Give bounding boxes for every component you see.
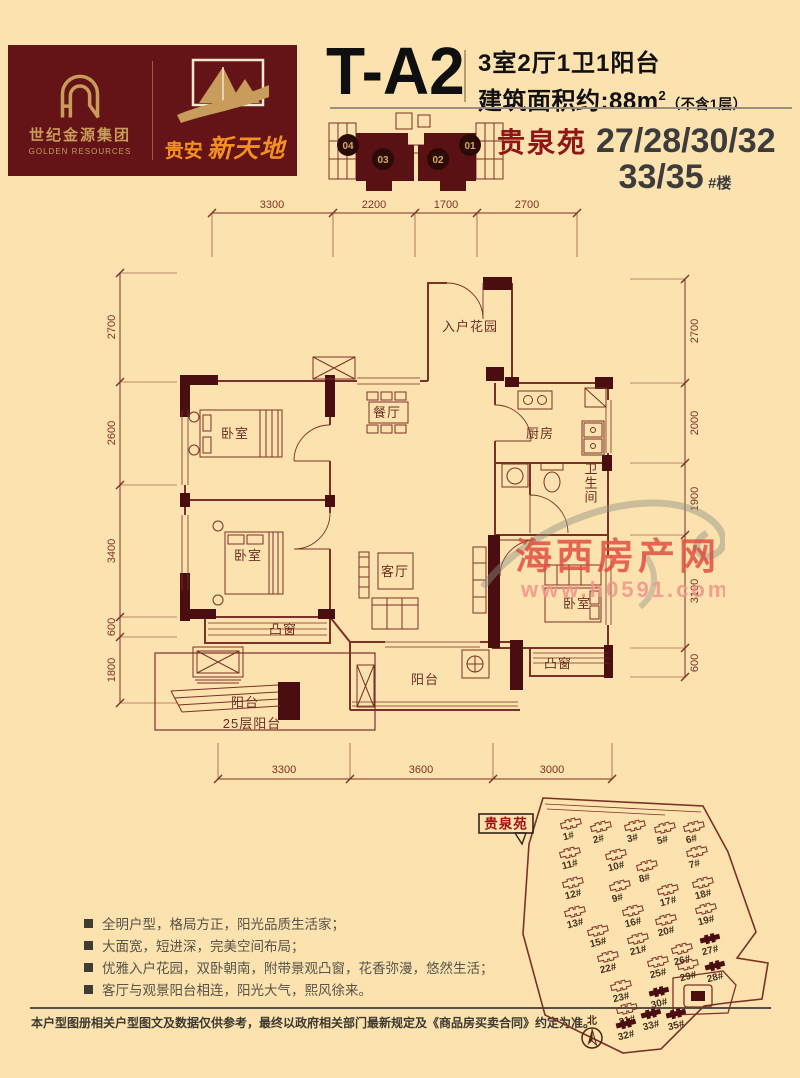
golden-resources-logo: 世纪金源集团 GOLDEN RESOURCES xyxy=(8,45,152,176)
siteplan-building-label: 35# xyxy=(667,1018,686,1033)
siteplan-building-label: 32# xyxy=(617,1028,636,1043)
gr-monogram-icon xyxy=(48,65,112,121)
room-label-balcony: 阳台 xyxy=(411,672,439,687)
site-plan: 1#2#3#5#6#7#8#10#11#12#9#17#18#13#16#19#… xyxy=(465,782,795,1074)
dim-label: 3600 xyxy=(409,764,433,776)
feature-item: 全明户型，格局方正，阳光品质生活家； xyxy=(84,916,524,933)
siteplan-building-label: 16# xyxy=(624,915,643,930)
feature-text: 客厅与观景阳台相连，阳光大气，熙风徐来。 xyxy=(102,982,372,999)
area-line: 建筑面积约:88m2（不含1层） xyxy=(478,81,747,116)
dim-label: 600 xyxy=(689,654,701,672)
brand-logo: 贵安 新天地 xyxy=(153,45,297,176)
key-plan: 04 03 02 01 xyxy=(326,111,506,195)
siteplan-building: 16# xyxy=(621,904,647,930)
unit-badge: 04 xyxy=(342,141,354,152)
room-label-balcony-25f: 阳台 xyxy=(231,695,259,710)
building-suffix: #楼 xyxy=(708,175,731,192)
compass-label: 北 xyxy=(587,1014,597,1027)
siteplan-building-label: 22# xyxy=(599,961,618,976)
brand-name: 贵安 新天地 xyxy=(165,129,285,165)
siteplan-building-label: 7# xyxy=(688,858,702,871)
siteplan-building: 9# xyxy=(608,879,634,905)
court-line-2: 33/35 #楼 xyxy=(560,158,790,197)
area-value: 88 xyxy=(609,88,637,115)
siteplan-building: 19# xyxy=(694,902,720,928)
siteplan-building-label: 8# xyxy=(638,872,652,885)
room-label-living: 客厅 xyxy=(381,564,409,579)
siteplan-label: 贵泉苑 xyxy=(484,816,528,832)
feature-item: 优雅入户花园，双卧朝南，附带景观凸窗，花香弥漫，悠然生活； xyxy=(84,960,524,977)
mountain-logo-icon xyxy=(175,57,275,127)
siteplan-building-highlighted: 28# xyxy=(703,959,729,985)
siteplan-callout: 贵泉苑 xyxy=(479,814,533,844)
company-name-en: GOLDEN RESOURCES xyxy=(29,147,132,156)
room-label-bay-window-right: 凸窗 xyxy=(544,656,572,671)
unit-summary: 3室2厅1卫1阳台 建筑面积约:88m2（不含1层） xyxy=(478,43,747,116)
siteplan-building: 15# xyxy=(586,924,612,950)
siteplan-building: 11# xyxy=(558,846,584,872)
unit-code: T-A2 xyxy=(326,33,465,110)
brand-script: 新天地 xyxy=(207,135,285,163)
building-numbers-2: 33/35 xyxy=(619,158,704,196)
bullet-square-icon xyxy=(84,941,93,950)
siteplan-building: 3# xyxy=(623,819,649,845)
dim-label: 600 xyxy=(106,618,118,636)
company-name-cn: 世纪金源集团 xyxy=(29,124,131,145)
feature-text: 大面宽，短进深，完美空间布局； xyxy=(102,938,305,955)
dim-label: 2700 xyxy=(515,199,539,211)
floor-plan: 3300 2200 1700 2700 2700 2600 3400 600 1… xyxy=(85,195,725,795)
court-name: 贵泉苑 xyxy=(497,121,587,161)
siteplan-building-label: 20# xyxy=(657,924,676,939)
layout-line: 3室2厅1卫1阳台 xyxy=(478,43,747,78)
siteplan-building-label: 21# xyxy=(629,943,648,958)
siteplan-building-highlighted: 35# xyxy=(664,1007,690,1033)
dim-label: 3400 xyxy=(106,539,118,563)
feature-item: 客厅与观景阳台相连，阳光大气，熙风徐来。 xyxy=(84,982,524,999)
siteplan-building: 1# xyxy=(559,817,585,843)
siteplan-building: 7# xyxy=(685,845,711,871)
area-unit: m xyxy=(637,88,659,115)
siteplan-building: 12# xyxy=(561,876,587,902)
siteplan-building-label: 1# xyxy=(562,830,576,843)
watermark: 海西房产网 www.h0591.com xyxy=(483,503,725,607)
bullet-square-icon xyxy=(84,919,93,928)
dim-label: 2700 xyxy=(689,319,701,343)
court-line: 贵泉苑 27/28/30/32 xyxy=(497,121,776,161)
room-label-bedroom-1: 卧室 xyxy=(221,426,249,441)
room-label-entry-garden: 入户花园 xyxy=(442,319,498,334)
watermark-title: 海西房产网 xyxy=(515,536,720,577)
siteplan-building-label: 27# xyxy=(701,943,720,958)
siteplan-building-label: 12# xyxy=(564,887,583,902)
feature-text: 全明户型，格局方正，阳光品质生活家； xyxy=(102,916,345,933)
room-label-bedroom-2: 卧室 xyxy=(234,548,262,563)
siteplan-building: 13# xyxy=(563,905,589,931)
area-note: （不含1层） xyxy=(666,96,747,112)
siteplan-building: 20# xyxy=(654,913,680,939)
logo-box: 世纪金源集团 GOLDEN RESOURCES 贵安 新天地 xyxy=(8,45,297,176)
dim-label: 1700 xyxy=(434,199,458,211)
room-label-dining: 餐厅 xyxy=(373,405,401,420)
siteplan-building-highlighted: 30# xyxy=(647,985,673,1011)
bullet-square-icon xyxy=(84,985,93,994)
room-label-kitchen: 厨房 xyxy=(526,426,554,441)
header-vertical-divider xyxy=(464,50,466,102)
feature-item: 大面宽，短进深，完美空间布局； xyxy=(84,938,524,955)
siteplan-building: 25# xyxy=(646,955,672,981)
brand-prefix: 贵安 xyxy=(165,141,203,162)
siteplan-building: 8# xyxy=(635,859,661,885)
siteplan-building-label: 25# xyxy=(649,966,668,981)
unit-badge: 01 xyxy=(464,141,476,152)
unit-badge: 03 xyxy=(377,155,389,166)
dim-label: 3300 xyxy=(260,199,284,211)
siteplan-building-label: 23# xyxy=(612,990,631,1005)
siteplan-building: 26# xyxy=(670,942,696,968)
siteplan-building-label: 5# xyxy=(656,834,670,847)
siteplan-building: 18# xyxy=(691,876,717,902)
siteplan-building: 5# xyxy=(653,821,679,847)
unit-badge: 02 xyxy=(432,155,444,166)
room-label-balcony-note: 25层阳台 xyxy=(223,716,281,731)
siteplan-building-label: 10# xyxy=(607,859,626,874)
dimension-lines xyxy=(116,209,689,783)
dim-label: 2200 xyxy=(362,199,386,211)
siteplan-building-label: 29# xyxy=(679,969,698,984)
bullet-square-icon xyxy=(84,963,93,972)
feature-text: 优雅入户花园，双卧朝南，附带景观凸窗，花香弥漫，悠然生活； xyxy=(102,960,494,977)
siteplan-building-label: 33# xyxy=(642,1018,661,1033)
header-rule xyxy=(330,107,792,109)
siteplan-building: 21# xyxy=(626,932,652,958)
siteplan-building-label: 13# xyxy=(566,916,585,931)
siteplan-building-label: 2# xyxy=(592,833,606,846)
siteplan-building: 23# xyxy=(609,979,635,1005)
dim-label: 3000 xyxy=(540,764,564,776)
siteplan-building-label: 19# xyxy=(697,913,716,928)
watermark-url: www.h0591.com xyxy=(520,577,725,602)
dim-label: 3300 xyxy=(272,764,296,776)
siteplan-building-label: 11# xyxy=(561,858,580,873)
siteplan-building-label: 6# xyxy=(685,833,699,846)
siteplan-building: 6# xyxy=(682,820,708,846)
siteplan-building-highlighted: 27# xyxy=(698,932,724,958)
building-numbers-1: 27/28/30/32 xyxy=(596,122,776,161)
siteplan-building: 2# xyxy=(589,820,615,846)
siteplan-building-label: 18# xyxy=(694,887,713,902)
siteplan-building-highlighted: 33# xyxy=(639,1007,665,1033)
siteplan-building: 10# xyxy=(604,848,630,874)
siteplan-building-label: 9# xyxy=(611,892,625,905)
dim-label: 2700 xyxy=(106,315,118,339)
room-label-bathroom: 卫生间 xyxy=(583,462,598,504)
north-compass-icon: 北 xyxy=(582,1014,602,1048)
dim-label: 2000 xyxy=(689,411,701,435)
brochure-page: 世纪金源集团 GOLDEN RESOURCES 贵安 新天地 T-A2 3室2厅… xyxy=(0,0,800,1078)
siteplan-building-label: 15# xyxy=(589,935,608,950)
feature-list: 全明户型，格局方正，阳光品质生活家；大面宽，短进深，完美空间布局；优雅入户花园，… xyxy=(84,916,524,1004)
siteplan-building: 22# xyxy=(596,950,622,976)
siteplan-building-label: 3# xyxy=(626,832,640,845)
room-label-bay-window-left: 凸窗 xyxy=(269,622,297,637)
dim-label: 1800 xyxy=(106,658,118,682)
siteplan-buildings: 1#2#3#5#6#7#8#10#11#12#9#17#18#13#16#19#… xyxy=(558,817,729,1043)
siteplan-building-label: 17# xyxy=(659,894,678,909)
siteplan-building: 17# xyxy=(656,883,682,909)
dim-label: 2600 xyxy=(106,421,118,445)
